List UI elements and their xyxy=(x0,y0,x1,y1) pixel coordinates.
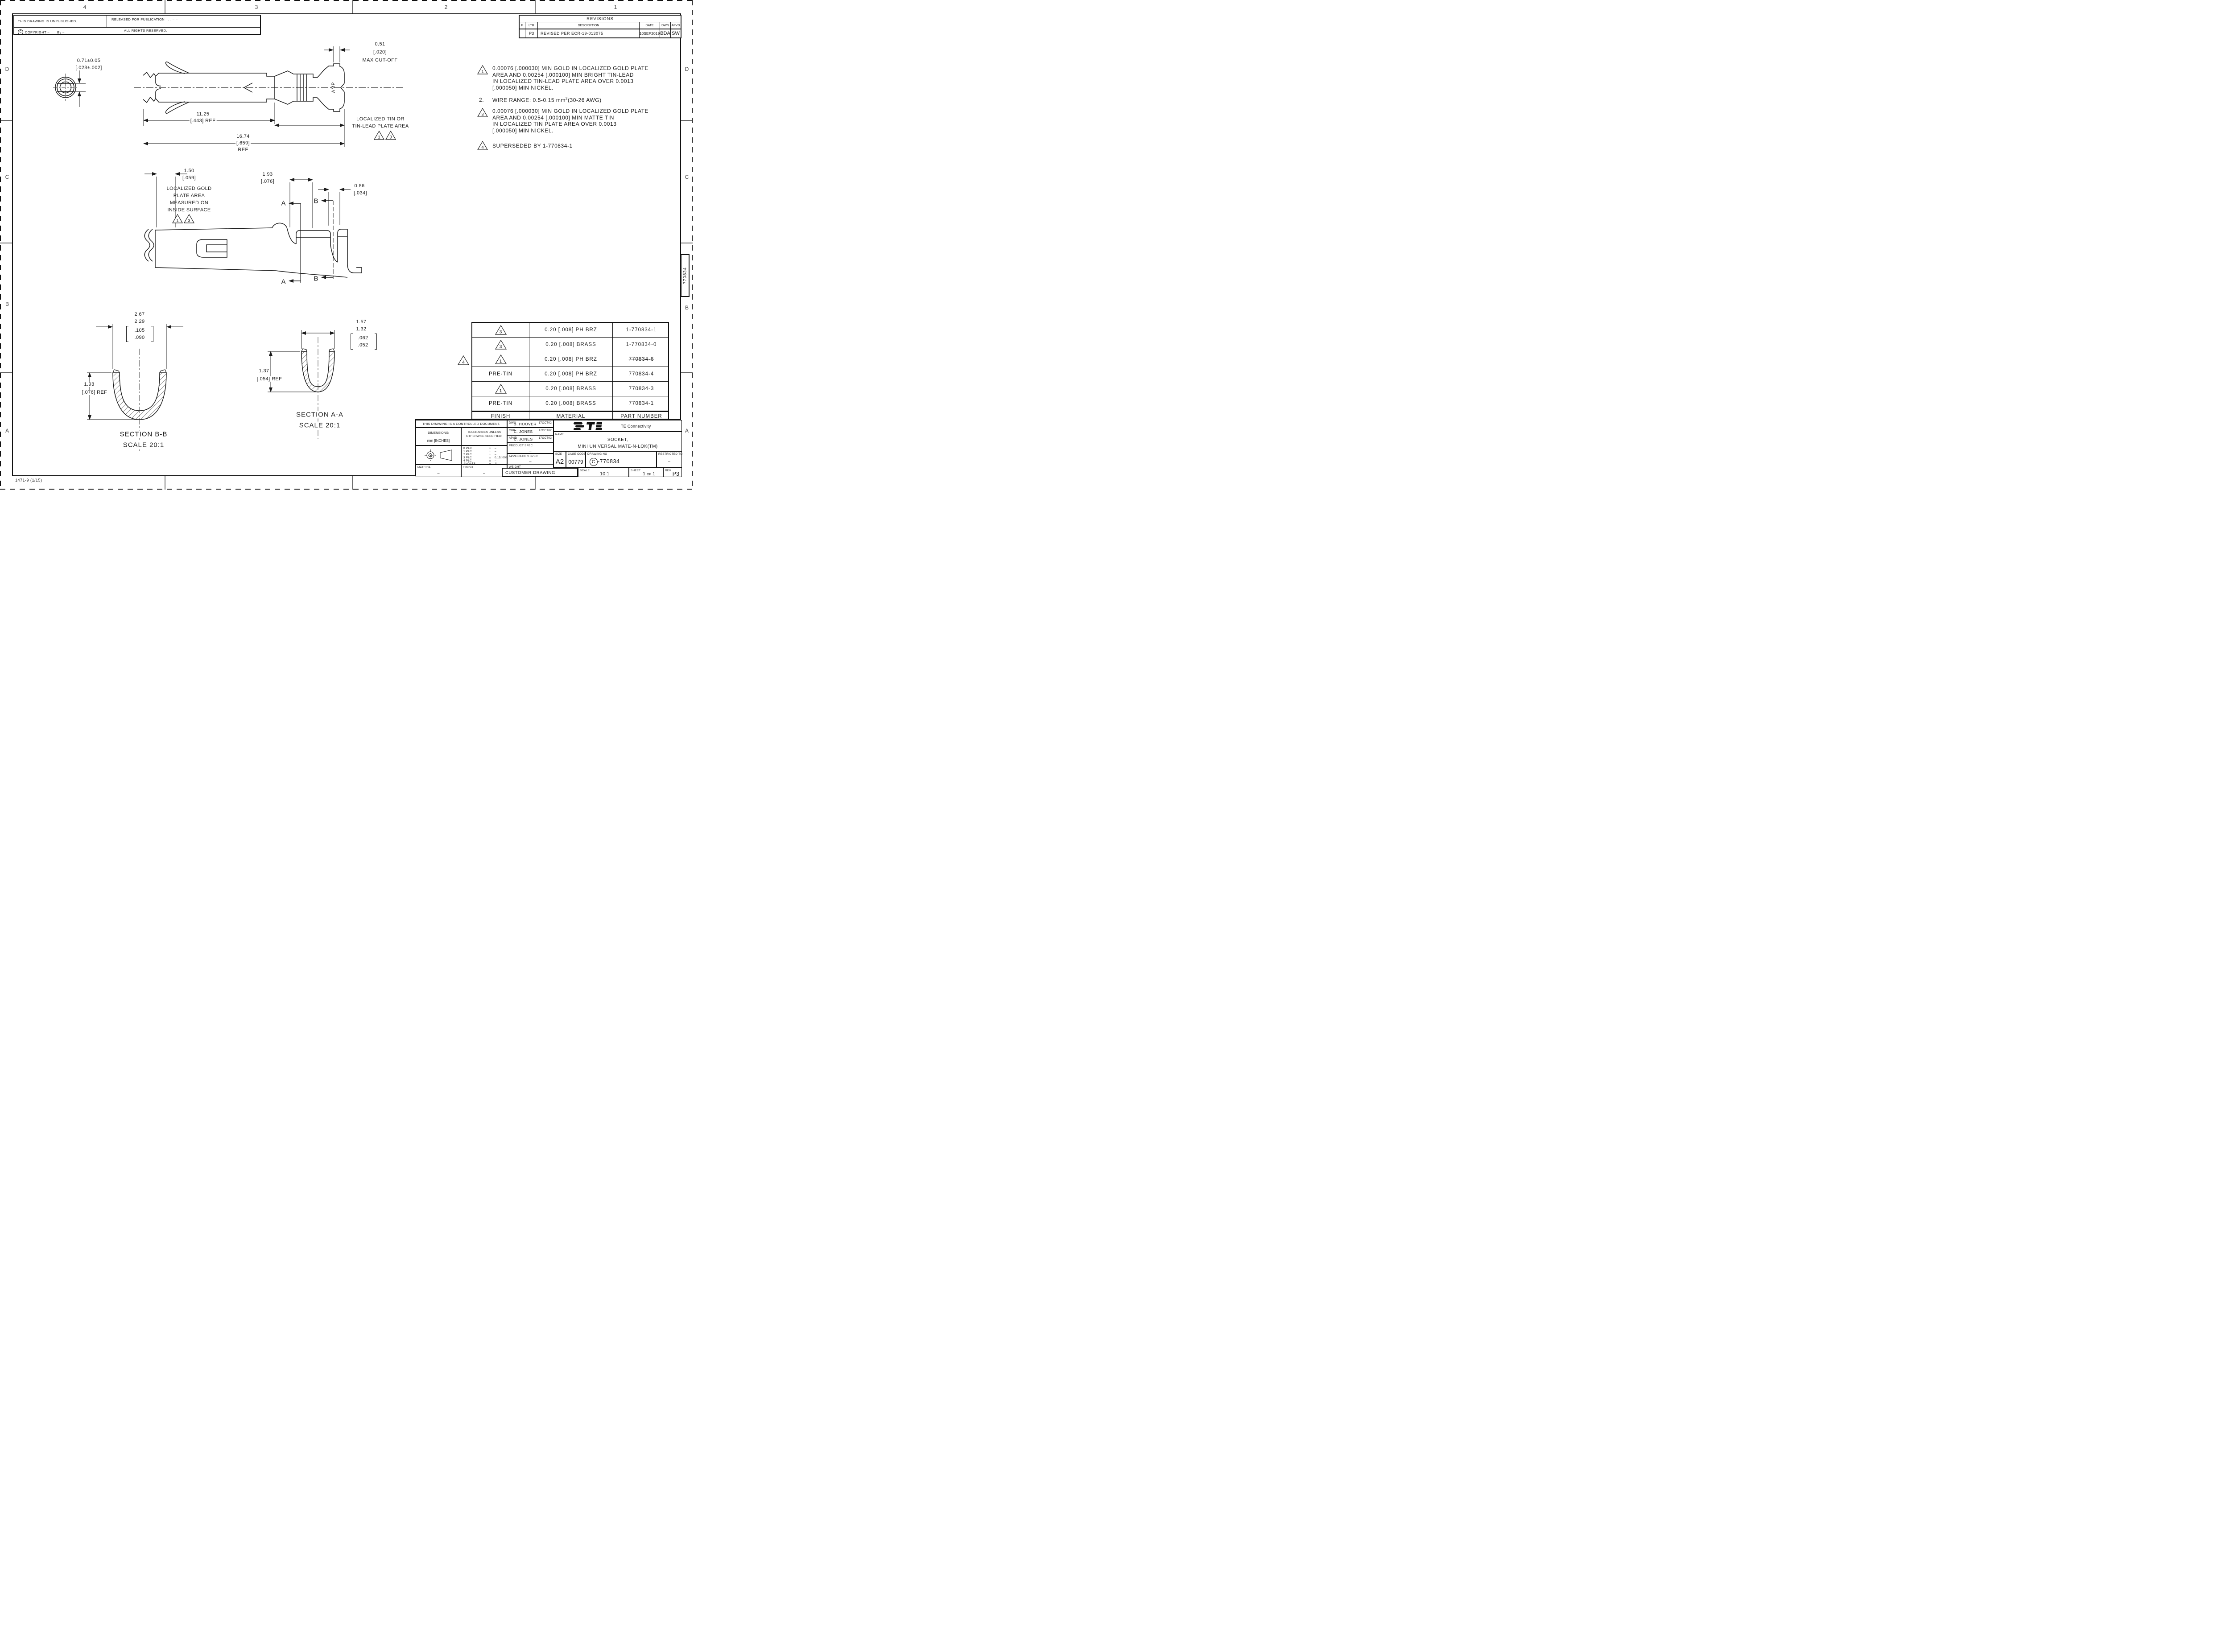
aa-caption: SECTION A-A xyxy=(295,411,344,419)
material-row: 1 0.20 [.008] PH BRZ 770834-6 xyxy=(472,352,668,367)
dim-1125-mm: 11.25 xyxy=(196,111,211,117)
note4-flag-icon: 4 xyxy=(477,141,488,150)
note2-number: 2. xyxy=(479,97,484,103)
zone-left-a: A xyxy=(5,428,9,434)
tol-key: 2 PLC xyxy=(463,453,472,456)
tol-pm: ± xyxy=(489,453,491,456)
part-number-cell: 770834-3 xyxy=(613,382,670,396)
tb-material-label: MATERIAL xyxy=(417,466,432,469)
note4-text: SUPERSEDED BY 1-770834-1 xyxy=(492,143,573,149)
amp-brand-mark: AMP xyxy=(331,82,336,93)
tol-val: – xyxy=(495,447,496,450)
rev-col-apvd: APVD xyxy=(671,22,681,29)
aa-bracket-left xyxy=(351,334,353,350)
part-number-cell: 770834-1 xyxy=(613,396,670,411)
tb-material-cell: MATERIAL – xyxy=(416,465,461,477)
aa-height-in: [.054] REF xyxy=(256,376,283,382)
restricted-cell: RESTRICTED TO – xyxy=(657,451,682,468)
dimensions-label: DIMENSIONS: xyxy=(416,431,461,435)
unpublished-text: THIS DRAWING IS UNPUBLISHED. xyxy=(18,19,77,23)
copyright-text: COPYRIGHT – xyxy=(25,30,50,34)
rev-row-ltr: P3 xyxy=(525,29,538,37)
note1-line: IN LOCALIZED TIN-LEAD PLATE AREA OVER 0.… xyxy=(492,78,634,84)
units-text: mm [INCHES] xyxy=(416,439,461,443)
tolerances-label2: OTHERWISE SPECIFIED: xyxy=(462,435,507,438)
copyright-icon: C xyxy=(18,29,23,35)
dim-cutoff-mm: 0.51 xyxy=(374,41,386,47)
edge-stub-number: 770834 xyxy=(683,267,688,284)
tb-finish-label: FINISH xyxy=(463,466,473,469)
material-row: PRE-TIN 0.20 [.008] PH BRZ 770834-4 xyxy=(472,367,668,382)
bb-height-in: [.076] REF xyxy=(81,390,108,395)
apvd-date: 17OCT02 xyxy=(539,437,552,440)
zone-top-3: 3 xyxy=(255,4,258,10)
dim-086-in: [.034] xyxy=(353,190,368,196)
view1-dimensions xyxy=(68,46,350,147)
tol-val: 0.15[.006] xyxy=(495,456,508,459)
dim-tip-mm: 0.71±0.05 xyxy=(76,58,101,63)
material-row: 3 0.20 [.008] BRASS 1-770834-0 xyxy=(472,338,668,352)
material-cell: 0.20 [.008] BRASS xyxy=(529,338,613,352)
tol-pm: ± xyxy=(489,459,491,462)
title-block: THIS DRAWING IS A CONTROLLED DOCUMENT. D… xyxy=(415,419,681,476)
header-box: THIS DRAWING IS UNPUBLISHED. RELEASED FO… xyxy=(13,15,261,35)
brand-name: TE Connectivity xyxy=(621,424,651,428)
zone-right-a: A xyxy=(685,428,689,434)
note3-line: IN LOCALIZED TIN PLATE AREA OVER 0.0013 xyxy=(492,121,616,127)
material-row: 3 0.20 [.008] PH BRZ 1-770834-1 xyxy=(472,323,668,338)
material-cell: 0.20 [.008] PH BRZ xyxy=(529,323,613,337)
section-aa-dimensions xyxy=(268,330,334,392)
released-text: RELEASED FOR PUBLICATION xyxy=(111,17,165,21)
zone-top-2: 2 xyxy=(445,4,448,10)
tol-key: 1 PLC xyxy=(463,450,472,453)
aa-bracket-right xyxy=(375,334,377,350)
rev-col-p: P xyxy=(520,22,525,29)
view2-terminal-bottom xyxy=(145,223,362,277)
edge-stub-box: 770834 xyxy=(681,254,690,297)
tol-key: 3 PLC xyxy=(463,456,472,459)
rev-label: REV xyxy=(665,469,671,472)
tin-flag3-icon: 3 xyxy=(385,131,396,140)
finish-flag-icon: 3 xyxy=(495,340,507,350)
drawing-no-value: C-770834 xyxy=(590,458,619,466)
dim-1125-in: [.443] REF xyxy=(190,118,217,124)
tol-val: – xyxy=(495,459,496,462)
section-a-letter: A xyxy=(280,200,287,207)
form-number: 1471-9 (1/15) xyxy=(15,478,42,482)
rev-row-p xyxy=(520,29,525,37)
aa-dim-in2: .052 xyxy=(357,342,369,348)
note3-line: [.000050] MIN NICKEL. xyxy=(492,128,553,134)
note1-flag-icon: 1 xyxy=(477,65,488,74)
dim-gold-mm: 1.50 xyxy=(183,168,195,173)
tin-area-label: LOCALIZED TIN OR xyxy=(355,116,405,122)
svg-text:3: 3 xyxy=(188,218,190,223)
zone-top-1: 1 xyxy=(614,4,617,10)
bb-caption: SECTION B-B xyxy=(119,431,169,438)
material-row: PRE-TIN 0.20 [.008] BRASS 770834-1 xyxy=(472,396,668,411)
finish-cell: PRE-TIN xyxy=(472,396,529,411)
chk-name: C. JONES xyxy=(514,429,533,434)
zone-left-b: B xyxy=(5,301,9,307)
bb-bracket-right xyxy=(151,326,153,342)
tol-val: – xyxy=(495,450,496,453)
rev-col-desc: DESCRIPTION xyxy=(538,22,640,29)
rev-col-dwn: DWN xyxy=(660,22,671,29)
size-value: A2 xyxy=(554,458,566,466)
drawing-no-number: -770834 xyxy=(598,458,619,465)
svg-text:3: 3 xyxy=(499,345,502,350)
rev-col-date: DATE xyxy=(640,22,660,29)
svg-text:4: 4 xyxy=(481,145,483,150)
sheet-value: 1 OF 1 xyxy=(643,471,655,477)
svg-text:1: 1 xyxy=(176,218,178,223)
third-angle-projection-icon xyxy=(423,448,454,463)
dim-tip-in: [.028±.002] xyxy=(74,65,103,70)
gold-flag3-icon: 3 xyxy=(184,214,194,223)
zone-right-c: C xyxy=(685,174,689,180)
bb-dim-mm2: 2.29 xyxy=(133,319,145,324)
finish-flag-icon: 1 xyxy=(495,354,507,364)
size-label: SIZE xyxy=(555,453,562,456)
material-cell: 0.20 [.008] PH BRZ xyxy=(529,367,613,381)
scale-cell: SCALE 10:1 xyxy=(578,468,629,477)
gold-area-label: MEASURED ON xyxy=(169,200,209,206)
te-logo xyxy=(574,422,602,431)
dwn-name: S. HOOVER xyxy=(514,422,537,426)
note2-text-awg: (30-26 AWG) xyxy=(568,97,602,103)
material-cell: 0.20 [.008] BRASS xyxy=(529,382,613,396)
tolerances-header-cell: TOLERANCES UNLESS OTHERWISE SPECIFIED: xyxy=(461,428,507,445)
tolerances-label: TOLERANCES UNLESS xyxy=(462,431,507,434)
rights-text: ALL RIGHTS RESERVED. xyxy=(124,29,167,33)
zone-left-c: C xyxy=(5,174,9,180)
sheet-cell: SHEET 1 OF 1 xyxy=(629,468,663,477)
brand-cell: TE Connectivity xyxy=(553,420,682,432)
bb-scale: SCALE 20:1 xyxy=(122,441,165,449)
part-name-line1: SOCKET, xyxy=(554,437,681,442)
note1-line: [.000050] MIN NICKEL. xyxy=(492,85,553,91)
part-number-cell: 770834-4 xyxy=(613,367,670,381)
rev-col-ltr: LTR xyxy=(525,22,538,29)
material-cell: 0.20 [.008] PH BRZ xyxy=(529,352,613,367)
view1-centerlines xyxy=(53,74,405,101)
cage-code-value: 00779 xyxy=(566,459,585,465)
gold-flag1-icon: 1 xyxy=(172,214,183,223)
gold-area-label: PLATE AREA xyxy=(173,193,206,198)
rev-row-date: 10SEP2019 xyxy=(640,29,660,37)
drawing-no-c-icon: C xyxy=(590,458,598,466)
header-row1: THIS DRAWING IS UNPUBLISHED. RELEASED FO… xyxy=(14,16,260,28)
note2-text: WIRE RANGE: 0.5-0.15 mm2(30-26 AWG) xyxy=(492,97,602,103)
finish-cell: PRE-TIN xyxy=(472,367,529,381)
bb-dim-in2: .090 xyxy=(133,335,145,340)
drawing-no-label: DRAWING NO xyxy=(587,453,607,456)
tol-pm: ± xyxy=(489,456,491,459)
note1-line: 0.00076 [.000030] MIN GOLD IN LOCALIZED … xyxy=(492,65,648,71)
part-number-cell-superseded: 770834-6 xyxy=(613,352,670,367)
cage-code-cell: CAGE CODE 00779 xyxy=(566,451,586,468)
bb-height-mm: 1.93 xyxy=(83,382,95,387)
tin-area-label: TIN-LEAD PLATE AREA xyxy=(351,124,409,129)
dimensions-cell: DIMENSIONS: mm [INCHES] xyxy=(416,428,461,445)
dim-193-mm: 1.93 xyxy=(261,172,273,177)
name-cell: NAME SOCKET, MINI UNIVERSAL MATE-N-LOK(T… xyxy=(553,432,682,451)
section-b-letter: B xyxy=(313,275,319,283)
svg-text:3: 3 xyxy=(389,135,392,140)
svg-text:1: 1 xyxy=(499,389,502,394)
apvd-cell: APVD 17OCT02 C. JONES xyxy=(507,435,553,443)
application-spec-cell: APPLICATION SPEC – xyxy=(507,453,553,464)
part-number-cell: 1-770834-1 xyxy=(613,323,670,337)
tb-finish-cell: FINISH – xyxy=(461,465,507,477)
dim-1674-mm: 16.74 xyxy=(235,134,251,139)
cage-code-label: CAGE CODE xyxy=(568,453,586,456)
dim-1674-in: [.659] xyxy=(235,140,251,146)
restricted-label: RESTRICTED TO xyxy=(658,453,682,456)
sheet-of: OF xyxy=(647,473,651,476)
material-side-flag-icon: 4 xyxy=(458,355,469,365)
tolerance-values-cell: 0 PLC±– 1 PLC±– 2 PLC±– 3 PLC±0.15[.006]… xyxy=(461,445,507,465)
rev-row-desc: REVISED PER ECR-19-013075 xyxy=(538,29,640,37)
chk-cell: CHK 17OCT02 C. JONES xyxy=(507,428,553,435)
finish-flag-icon: 1 xyxy=(495,384,507,394)
bb-dim-in1: .105 xyxy=(133,328,145,333)
rev-row-apvd: SW xyxy=(671,29,681,37)
product-spec-value: – xyxy=(508,449,553,453)
drawing-no-cell: DRAWING NO C-770834 xyxy=(586,451,657,468)
tol-val: – xyxy=(495,453,496,456)
scale-label: SCALE xyxy=(580,469,590,472)
aa-height-mm: 1.37 xyxy=(258,368,270,374)
product-spec-cell: PRODUCT SPEC – xyxy=(507,443,553,453)
product-spec-label: PRODUCT SPEC xyxy=(509,444,533,447)
svg-text:1: 1 xyxy=(499,359,502,364)
dim-1674-ref: REF xyxy=(237,147,249,152)
note3-line: 0.00076 [.000030] MIN GOLD IN LOCALIZED … xyxy=(492,108,648,114)
sheet-label: SHEET xyxy=(631,469,641,472)
tin-flag1-icon: 1 xyxy=(374,131,384,140)
zone-left-d: D xyxy=(5,66,9,72)
controlled-doc-cell: THIS DRAWING IS A CONTROLLED DOCUMENT. xyxy=(416,420,507,428)
sheet-total: 1 xyxy=(652,471,655,477)
header-cell-unpublished: THIS DRAWING IS UNPUBLISHED. xyxy=(14,16,107,27)
application-spec-value: – xyxy=(508,459,553,464)
rev-value: P3 xyxy=(673,471,679,477)
part-number-cell: 1-770834-0 xyxy=(613,338,670,352)
svg-text:1: 1 xyxy=(378,135,380,140)
dim-cutoff-label: MAX CUT-OFF xyxy=(362,58,399,63)
material-table: 3 0.20 [.008] PH BRZ 1-770834-1 3 0.20 [… xyxy=(471,322,669,420)
material-cell: 0.20 [.008] BRASS xyxy=(529,396,613,411)
svg-text:4: 4 xyxy=(462,360,465,365)
revisions-table: REVISIONS P LTR DESCRIPTION DATE DWN APV… xyxy=(519,15,681,38)
tol-key: 4 PLC xyxy=(463,459,472,462)
drawing-sheet: 4 3 2 1 D C B A D C B A 770834 xyxy=(0,0,693,490)
restricted-value: – xyxy=(657,459,681,463)
aa-scale: SCALE 20:1 xyxy=(298,422,342,429)
svg-text:3: 3 xyxy=(499,330,502,335)
rev-cell: REV P3 xyxy=(663,468,682,477)
customer-drawing-cell: CUSTOMER DRAWING xyxy=(502,468,578,477)
gold-area-label: INSIDE SURFACE xyxy=(166,207,211,213)
zone-top-4: 4 xyxy=(83,4,87,10)
bb-bracket-left xyxy=(126,326,128,342)
dim-193-in: [.076] xyxy=(260,179,275,184)
sheet-no: 1 xyxy=(643,471,645,477)
tb-material-value: – xyxy=(416,471,461,475)
section-a-letter: A xyxy=(280,278,287,286)
material-row: 1 0.20 [.008] BRASS 770834-3 xyxy=(472,382,668,396)
tol-key: 0 PLC xyxy=(463,447,472,450)
note1-line: AREA AND 0.00254 [.000100] MIN BRIGHT TI… xyxy=(492,72,634,78)
name-label: NAME xyxy=(555,433,564,436)
released-marks: , . – – xyxy=(168,17,178,21)
application-spec-label: APPLICATION SPEC xyxy=(509,455,538,458)
tb-finish-value: – xyxy=(462,471,507,475)
dim-086-mm: 0.86 xyxy=(353,183,365,189)
finish-flag-icon: 3 xyxy=(495,325,507,335)
dwn-date: 17OCT02 xyxy=(539,421,552,424)
aa-dim-in1: .062 xyxy=(357,335,369,341)
svg-text:1: 1 xyxy=(481,70,483,74)
chk-date: 17OCT02 xyxy=(539,429,552,432)
bb-dim-mm1: 2.67 xyxy=(133,312,145,317)
note3-line: AREA AND 0.00254 [.000100] MIN MATTE TIN xyxy=(492,115,614,121)
svg-text:3: 3 xyxy=(481,112,483,117)
size-cell: SIZE A2 xyxy=(553,451,566,468)
scale-value: 10:1 xyxy=(600,471,609,477)
revisions-title: REVISIONS xyxy=(520,16,681,22)
aa-dim-mm2: 1.32 xyxy=(355,326,367,332)
part-name-line2: MINI UNIVERSAL MATE-N-LOK(TM) xyxy=(554,444,681,449)
rev-row-dwn: BDA xyxy=(660,29,671,37)
controlled-doc-text: THIS DRAWING IS A CONTROLLED DOCUMENT. xyxy=(416,422,507,426)
tol-pm: ± xyxy=(489,447,491,450)
customer-drawing-text: CUSTOMER DRAWING xyxy=(505,470,555,475)
section-b-letter: B xyxy=(313,198,319,205)
tol-pm: ± xyxy=(489,450,491,453)
note3-flag-icon: 3 xyxy=(477,108,488,117)
dim-cutoff-in: [.020] xyxy=(372,49,388,55)
dwn-cell: DWN 17OCT02 S. HOOVER xyxy=(507,420,553,428)
gold-area-label: LOCALIZED GOLD xyxy=(166,186,213,191)
zone-right-d: D xyxy=(685,66,689,72)
apvd-name: C. JONES xyxy=(514,437,533,441)
by-text: By – xyxy=(57,30,65,34)
note2-text-main: WIRE RANGE: 0.5-0.15 mm xyxy=(492,97,566,103)
zone-right-b: B xyxy=(685,305,689,311)
projection-cell xyxy=(416,445,461,465)
dim-gold-in: [.059] xyxy=(182,175,197,181)
aa-dim-mm1: 1.57 xyxy=(355,319,367,325)
